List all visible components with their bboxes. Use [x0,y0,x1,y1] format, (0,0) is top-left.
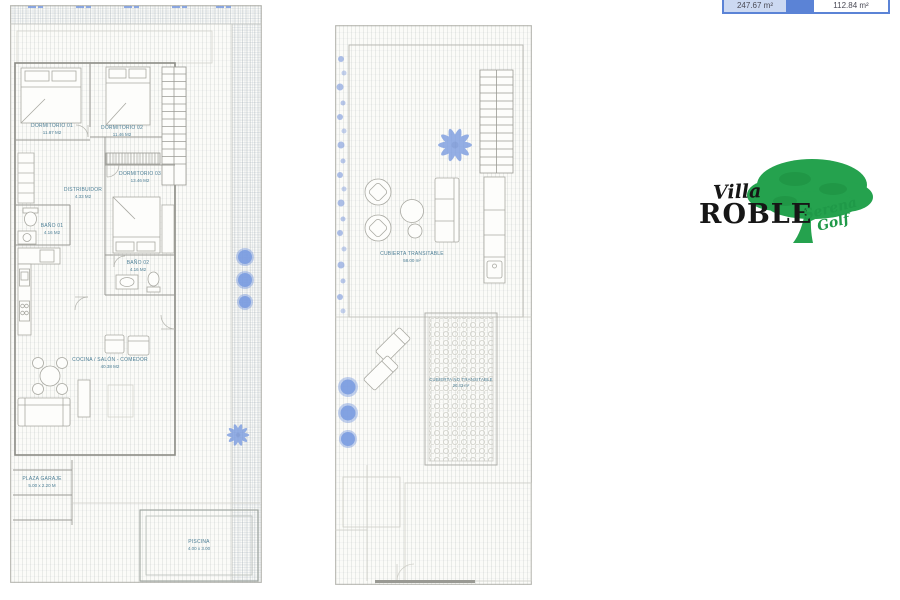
palm-icon [438,128,472,163]
bed-dormitorio-01 [21,68,81,123]
gravel-roof [425,313,497,465]
ground-floor-drawing [10,5,262,583]
roof-stairs [480,70,513,173]
logo-roble-text: ROBLE [699,199,812,230]
bathroom-01-fixtures [18,208,38,244]
sofa [18,398,70,426]
garage-space [13,460,72,525]
closet-shelves [18,153,34,203]
sun-lounger-2 [363,355,398,390]
closet-hatched [106,153,160,164]
area-summary-table: 247.67 m² 112.84 m² [722,0,890,14]
wardrobe [162,205,174,253]
rug [108,385,133,417]
tv-unit [78,380,90,417]
dining-table [33,358,68,395]
bush-icons [338,377,358,448]
villa-roble-logo: Villa ROBLE Serena Golf [685,155,890,255]
area-built-cell: 112.84 m² [814,0,888,12]
armchairs [105,335,149,355]
bed-dormitorio-03 [113,197,160,253]
sun-lounger-1 [375,327,410,362]
ground-floor-plan: DORMITORIO 01 11.87 M2 DORMITORIO 02 11.… [10,5,262,583]
outdoor-counter [484,177,505,283]
roof-overhang [17,31,212,63]
kitchen-counters [18,248,60,335]
dimension-marks [28,6,231,8]
palm-icon [227,423,250,446]
vegetation-strip [337,56,347,314]
pool [140,510,258,581]
bush-icons [236,248,254,310]
area-total-cell: 247.67 m² [724,0,788,12]
small-table [408,224,422,238]
roof-plan: CUBIERTA TRANSITABLE 58.00 m² CUBIERTA N… [335,25,532,585]
plan-sheet: DORMITORIO 01 11.87 M2 DORMITORIO 02 11.… [0,0,900,600]
lounge-chair-2 [365,215,391,241]
round-table [401,200,424,223]
bathroom-02-fixtures [116,272,160,292]
bed-dormitorio-02 [106,67,150,125]
stairs [162,67,186,185]
lounge-chair-1 [365,179,391,205]
roof-drawing [335,25,532,585]
area-header-cell [788,0,814,12]
lower-floor-ghost [335,465,531,581]
terrace-sofa [435,178,459,242]
